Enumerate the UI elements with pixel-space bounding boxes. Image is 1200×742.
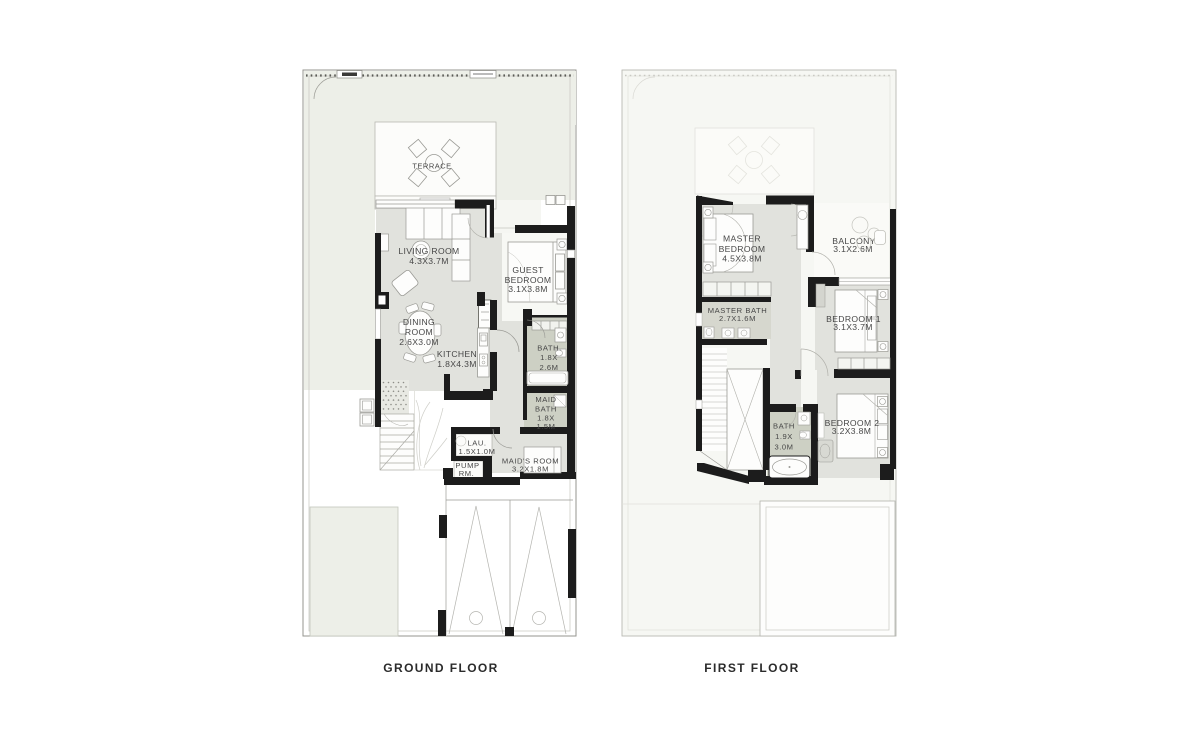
- svg-text:1.9X: 1.9X: [775, 432, 793, 441]
- svg-text:BATH.: BATH.: [537, 344, 562, 353]
- svg-text:2.6X3.0M: 2.6X3.0M: [399, 337, 439, 347]
- svg-text:4.3X3.7M: 4.3X3.7M: [409, 256, 449, 266]
- svg-text:GROUND FLOOR: GROUND FLOOR: [383, 661, 498, 675]
- svg-text:2.7X1.6M: 2.7X1.6M: [719, 314, 756, 323]
- svg-text:1.8X4.3M: 1.8X4.3M: [437, 359, 477, 369]
- svg-text:FIRST FLOOR: FIRST FLOOR: [704, 661, 799, 675]
- svg-text:DINING: DINING: [403, 317, 435, 327]
- svg-text:MASTER: MASTER: [723, 234, 761, 244]
- svg-text:GUEST: GUEST: [512, 265, 544, 275]
- svg-text:TERRACE: TERRACE: [412, 162, 451, 171]
- svg-text:1.8X: 1.8X: [540, 353, 558, 362]
- svg-text:ROOM: ROOM: [405, 327, 433, 337]
- svg-text:1.5X1.0M: 1.5X1.0M: [459, 447, 496, 456]
- svg-text:1.5M: 1.5M: [536, 422, 555, 431]
- svg-text:BATH: BATH: [773, 422, 795, 431]
- svg-text:BEDROOM: BEDROOM: [719, 244, 766, 254]
- svg-text:3.1X3.8M: 3.1X3.8M: [508, 284, 548, 294]
- svg-text:3.1X3.7M: 3.1X3.7M: [833, 322, 873, 332]
- svg-text:3.0M: 3.0M: [774, 443, 793, 452]
- svg-text:RM.: RM.: [459, 469, 475, 478]
- svg-text:3.2X1.8M: 3.2X1.8M: [512, 464, 549, 473]
- svg-text:KITCHEN: KITCHEN: [437, 349, 477, 359]
- svg-text:3.2X3.8M: 3.2X3.8M: [832, 426, 872, 436]
- svg-text:BATH: BATH: [535, 405, 557, 414]
- svg-text:MAID: MAID: [535, 395, 556, 404]
- svg-text:4.5X3.8M: 4.5X3.8M: [722, 254, 762, 264]
- svg-text:LIVING ROOM: LIVING ROOM: [398, 246, 459, 256]
- svg-text:2.6M: 2.6M: [539, 363, 558, 372]
